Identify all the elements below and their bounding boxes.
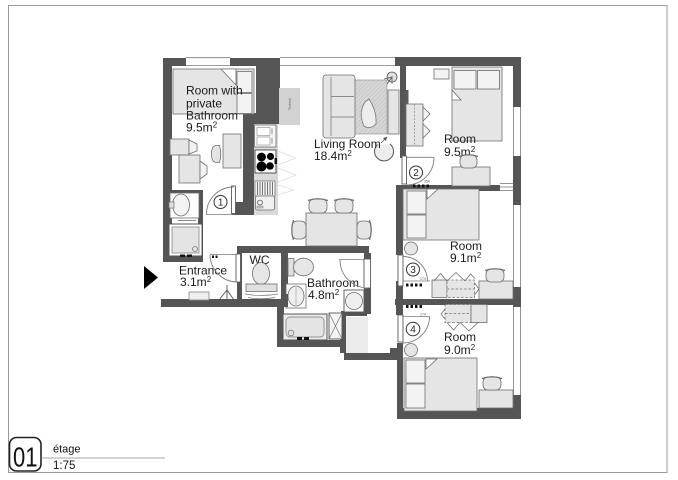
svg-text:étage: étage bbox=[53, 444, 81, 456]
svg-text:Room with: Room with bbox=[186, 84, 243, 98]
svg-text:Technik: Technik bbox=[288, 98, 292, 110]
svg-text:174: 174 bbox=[420, 313, 426, 317]
svg-text:18.4m2: 18.4m2 bbox=[314, 149, 352, 163]
svg-text:4: 4 bbox=[410, 325, 416, 336]
svg-text:Room: Room bbox=[444, 132, 476, 146]
svg-text:174: 174 bbox=[420, 277, 426, 281]
svg-text:2: 2 bbox=[413, 168, 419, 179]
svg-text:354: 354 bbox=[424, 180, 430, 184]
svg-text:01: 01 bbox=[13, 442, 38, 473]
svg-text:3: 3 bbox=[410, 265, 416, 276]
svg-text:Room: Room bbox=[444, 330, 476, 344]
svg-text:1:75: 1:75 bbox=[53, 460, 75, 472]
svg-text:1: 1 bbox=[218, 198, 224, 209]
